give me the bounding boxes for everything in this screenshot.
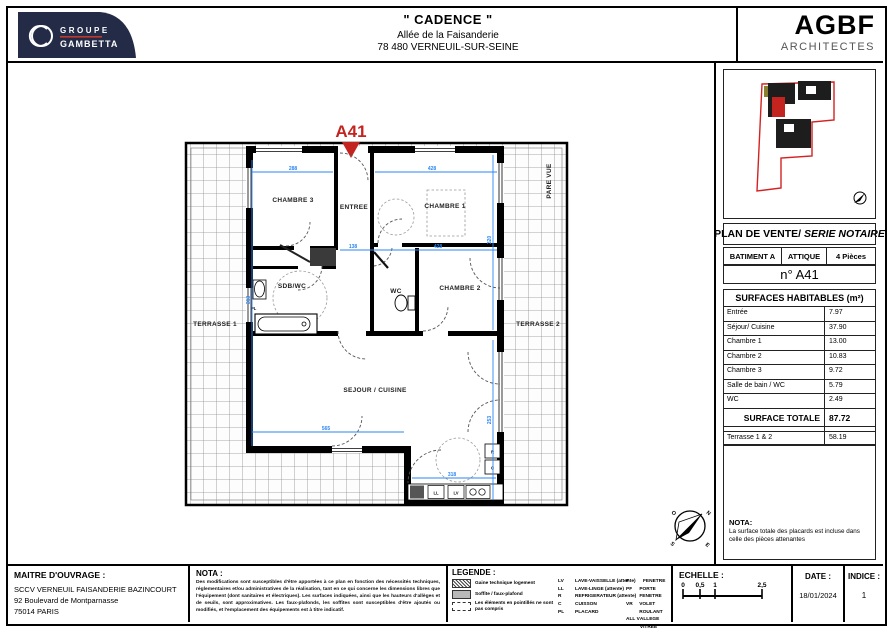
- scale-bar: 0 0,5 1 2,5: [679, 580, 789, 604]
- svg-text:N: N: [705, 510, 712, 517]
- legende-cell: LEGENDE : Gaine technique logement Soffi…: [448, 566, 673, 622]
- plan-type-title: PLAN DE VENTE/ SERIE NOTAIRE: [723, 223, 876, 245]
- table-row: Chambre 210.83: [724, 351, 875, 366]
- building-row: BATIMENT A ATTIQUE 4 Pièces: [723, 247, 876, 265]
- maitre-line: 75014 PARIS: [14, 607, 182, 616]
- surfaces-table: SURFACES HABITABLES (m²) Entrée7.97 Séjo…: [723, 289, 876, 445]
- fridge-label: R: [491, 450, 494, 455]
- surface-total-row: SURFACE TOTALE87.72: [724, 409, 875, 427]
- kitchen-counter: LL LV: [408, 484, 503, 500]
- etage-cell: ATTIQUE: [782, 248, 827, 264]
- maitre-line: 92 Boulevard de Montparnasse: [14, 596, 182, 605]
- washer-label: LL: [433, 491, 439, 496]
- cooking-label: C: [491, 466, 494, 471]
- pare-vue-label: PARE VUE: [546, 163, 553, 199]
- svg-text:313: 313: [246, 296, 252, 305]
- legende-equip-list: LVLAVE-VAISSELLE (attente) LLLAVE-LINGE …: [558, 578, 636, 616]
- plan-title-italic: SERIE NOTAIRE: [801, 228, 885, 240]
- project-address-1: Allée de la Faisanderie: [208, 30, 688, 41]
- footer-nota-cell: NOTA : Des modifications sont susceptibl…: [190, 566, 448, 622]
- maitre-line: SCCV VERNEUIL FAISANDERIE BAZINCOURT: [14, 585, 182, 594]
- side-nota-title: NOTA:: [729, 518, 752, 527]
- room-label-chambre-3: CHAMBRE 3: [272, 197, 313, 204]
- a41-label: A41: [335, 122, 366, 141]
- maitre-title: MAITRE D'OUVRAGE :: [14, 570, 182, 580]
- site-plan-map: [724, 70, 875, 217]
- date-value: 18/01/2024: [793, 591, 843, 600]
- groupe-gambetta-logo: GROUPE GAMBETTA: [18, 12, 138, 58]
- architect-name: AGBF: [795, 12, 876, 39]
- date-title: DATE :: [793, 572, 843, 581]
- technical-duct: [310, 248, 336, 266]
- room-label-chambre-2: CHAMBRE 2: [439, 285, 480, 292]
- svg-text:0,5: 0,5: [695, 582, 704, 589]
- indice-title: INDICE :: [845, 572, 883, 581]
- svg-text:320: 320: [487, 236, 493, 245]
- svg-text:S: S: [669, 541, 676, 548]
- gray-swatch-icon: [452, 590, 471, 599]
- svg-text:428: 428: [428, 166, 437, 172]
- svg-text:318: 318: [448, 472, 457, 478]
- architect-subtitle: ARCHITECTES: [781, 41, 875, 53]
- room-label-sdb: SDB/WC: [278, 283, 306, 290]
- table-row: Chambre 113.00: [724, 336, 875, 351]
- compass-rose-icon: N O S E: [669, 510, 712, 549]
- toilet-icon: [395, 295, 415, 311]
- svg-text:2,5: 2,5: [757, 582, 766, 589]
- footer-band: MAITRE D'OUVRAGE : SCCV VERNEUIL FAISAND…: [8, 564, 883, 624]
- svg-text:428: 428: [434, 244, 443, 250]
- bathtub-icon: [255, 314, 317, 334]
- hatched-swatch-icon: [452, 579, 471, 588]
- project-address-2: 78 480 VERNEUIL-SUR-SEINE: [208, 42, 688, 53]
- svg-text:0: 0: [681, 582, 685, 589]
- logo-flag-shape: [18, 12, 136, 58]
- unit-highlight: [772, 97, 785, 117]
- svg-text:288: 288: [289, 166, 298, 172]
- project-title: " CADENCE ": [208, 12, 688, 27]
- side-nota-box: NOTA: La surface totale des placards est…: [723, 445, 876, 560]
- footer-nota-title: NOTA :: [196, 569, 440, 578]
- legende-menuiserie-list: FFENETRE PFPORTE FENETRE VRVOLET ROULANT…: [626, 578, 671, 630]
- table-row: Entrée7.97: [724, 307, 875, 322]
- date-cell: DATE : 18/01/2024: [793, 566, 845, 622]
- table-row: Chambre 39.72: [724, 365, 875, 380]
- maitre-douvrage-cell: MAITRE D'OUVRAGE : SCCV VERNEUIL FAISAND…: [8, 566, 190, 622]
- side-panel: PLAN DE VENTE/ SERIE NOTAIRE BATIMENT A …: [714, 63, 885, 564]
- side-nota-text: La surface totale des placards est inclu…: [729, 528, 871, 544]
- logo-line1: GROUPE: [60, 26, 110, 35]
- apartment-floor: [248, 146, 503, 450]
- footer-nota-text: Des modifications sont susceptibles d'êt…: [196, 579, 440, 615]
- pieces-cell: 4 Pièces: [827, 248, 875, 264]
- lot-number: n° A41: [723, 265, 876, 284]
- logo-red-rule: [60, 36, 102, 38]
- room-label-chambre-1: CHAMBRE 1: [424, 203, 465, 210]
- indice-value: 1: [845, 591, 883, 600]
- echelle-cell: ECHELLE : 0 0,5 1 2,5: [673, 566, 793, 622]
- svg-text:1: 1: [713, 582, 717, 589]
- svg-text:O: O: [670, 510, 678, 518]
- room-label-terrasse-1: TERRASSE 1: [193, 321, 237, 328]
- washbasin-icon: [253, 280, 266, 299]
- table-row: Salle de bain / WC5.79: [724, 380, 875, 395]
- room-label-terrasse-2: TERRASSE 2: [516, 321, 560, 328]
- dishwasher-label: LV: [453, 491, 458, 496]
- room-label-entree: ENTREE: [340, 204, 369, 211]
- title-block-header: GROUPE GAMBETTA " CADENCE " Allée de la …: [8, 8, 883, 63]
- floor-plan: A41: [8, 63, 714, 564]
- table-row: Séjour/ Cuisine37.90: [724, 322, 875, 337]
- echelle-title: ECHELLE :: [679, 570, 785, 580]
- logo-line2: GAMBETTA: [60, 39, 118, 49]
- terrasse-row: Terrasse 1 & 258.19: [724, 432, 875, 447]
- room-label-wc: WC: [390, 288, 401, 295]
- room-label-sejour: SEJOUR / CUISINE: [343, 387, 407, 394]
- batiment-cell: BATIMENT A: [724, 248, 782, 264]
- svg-text:565: 565: [322, 426, 331, 432]
- dashed-swatch-icon: [452, 602, 471, 611]
- plan-sheet: GROUPE GAMBETTA " CADENCE " Allée de la …: [0, 0, 891, 630]
- site-plan-box: [723, 69, 876, 219]
- mini-north-icon: [854, 192, 866, 204]
- table-row: WC2.49: [724, 394, 875, 409]
- project-title-block: " CADENCE " Allée de la Faisanderie 78 4…: [208, 12, 688, 53]
- svg-text:E: E: [704, 542, 711, 549]
- svg-text:253: 253: [487, 416, 493, 425]
- plan-title-main: PLAN DE VENTE/: [714, 228, 801, 240]
- legende-title: LEGENDE :: [452, 568, 667, 577]
- architect-logo-box: AGBF ARCHITECTES: [736, 8, 885, 61]
- indice-cell: INDICE : 1: [845, 566, 883, 622]
- svg-text:138: 138: [349, 244, 358, 250]
- surfaces-table-title: SURFACES HABITABLES (m²): [724, 290, 875, 307]
